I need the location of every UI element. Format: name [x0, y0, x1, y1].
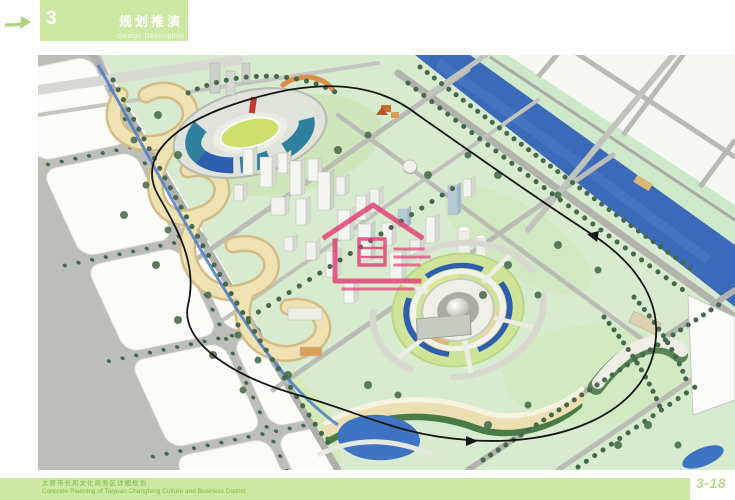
footer-project-title: 太原市长风文化商务区详细规划 Concrete Planning of Taiy… [42, 480, 246, 496]
header-bar: 3 规划推演 Design Description [40, 0, 188, 41]
footer-project-zh: 太原市长风文化商务区详细规划 [42, 480, 246, 488]
page-title-en: Design Description [117, 33, 185, 40]
section-number: 3 [46, 8, 57, 30]
footer-bar: 太原市长风文化商务区详细规划 Concrete Planning of Taiy… [0, 478, 690, 500]
document-page: 3 规划推演 Design Description [0, 0, 735, 500]
footer-project-en: Concrete Planning of Taiyuan Changfeng C… [42, 488, 246, 496]
page-number: 3-18 [696, 475, 726, 491]
masterplan-rendering [38, 55, 735, 470]
arrow-icon [4, 12, 34, 34]
dome-building [403, 160, 417, 174]
page-title: 规划推演 [119, 11, 183, 30]
